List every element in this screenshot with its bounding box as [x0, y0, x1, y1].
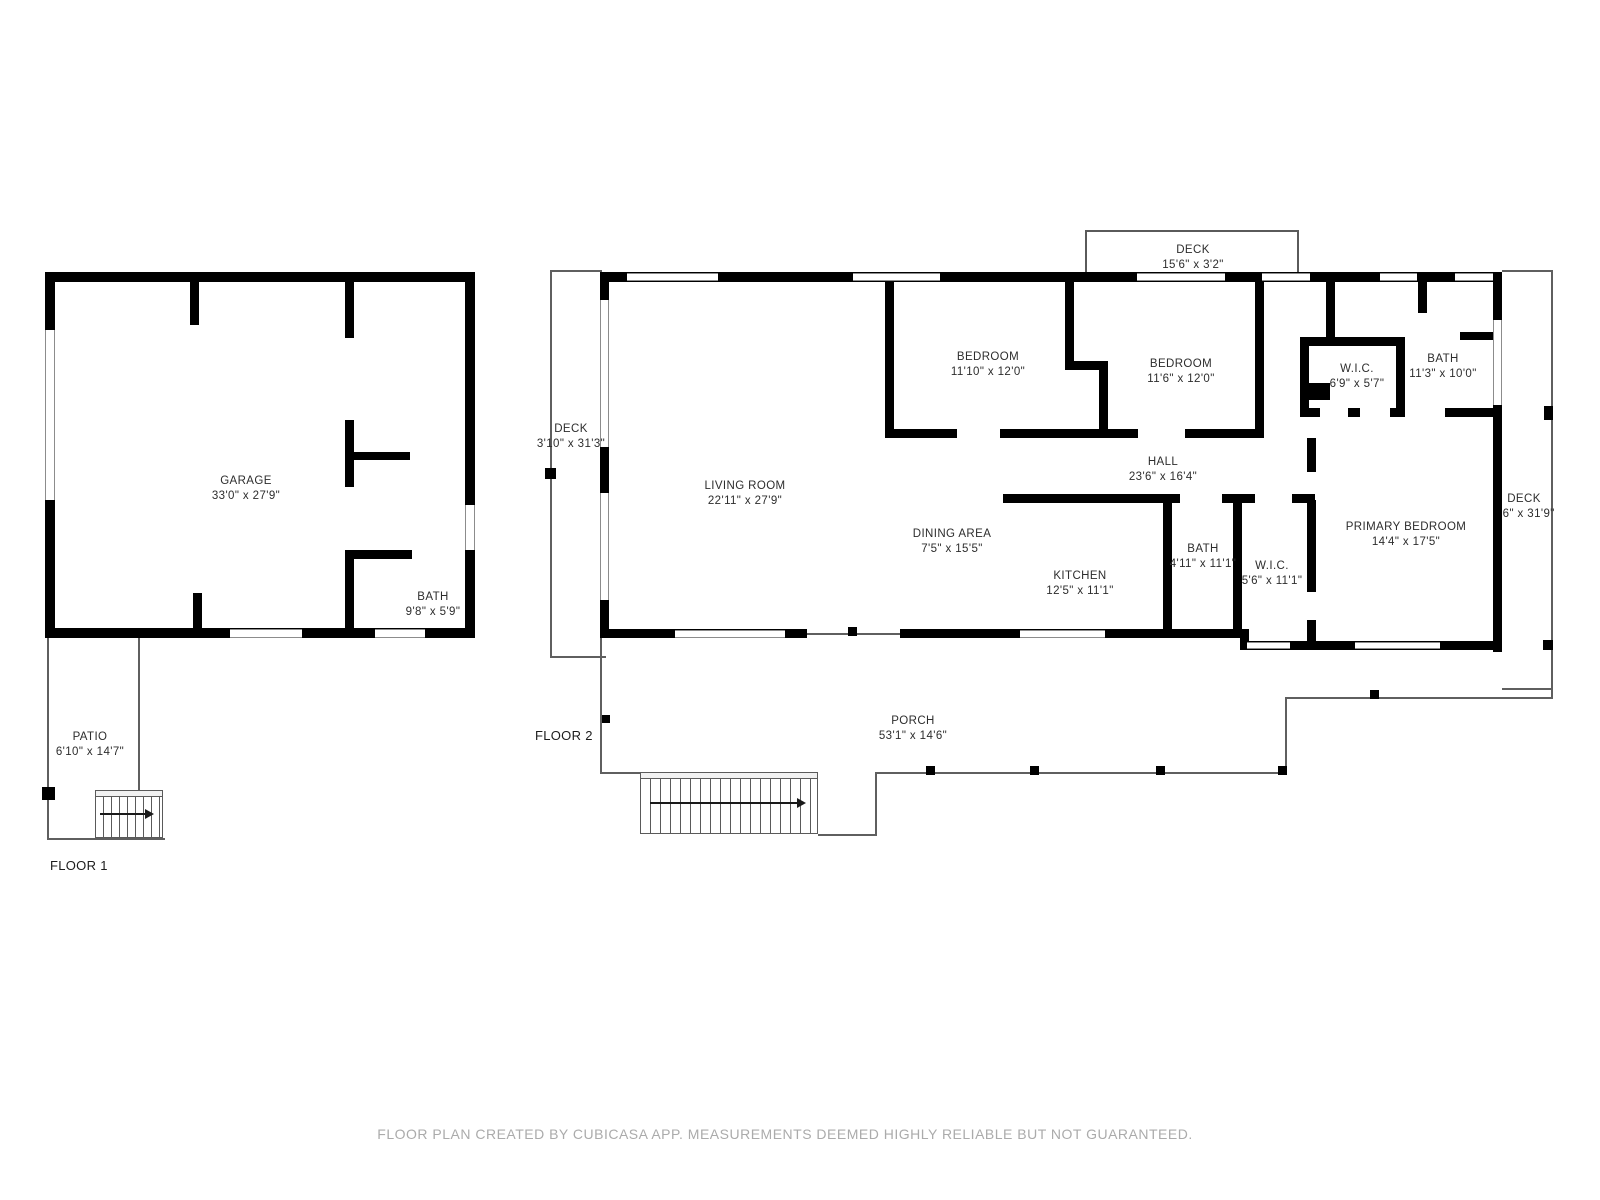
- wall-segment: [1396, 337, 1405, 417]
- room-name: DINING AREA: [913, 527, 992, 541]
- outline-line: [600, 772, 642, 774]
- wall-segment: [465, 272, 475, 638]
- wall-segment: [1326, 282, 1335, 337]
- wall-segment: [1445, 408, 1493, 417]
- window-marker: [45, 330, 55, 500]
- stairs-floor2: [640, 772, 818, 834]
- window-marker: [1262, 273, 1310, 281]
- room-name: DECK: [1493, 492, 1554, 506]
- room-name: BATH: [406, 590, 461, 604]
- room-dims: 53'1" x 14'6": [879, 729, 947, 743]
- window-marker: [1493, 320, 1502, 405]
- room-label-dining-area: DINING AREA 7'5" x 15'5": [913, 527, 992, 557]
- wall-segment: [1307, 620, 1316, 650]
- wall-segment: [345, 420, 354, 487]
- room-label-patio: PATIO 6'10" x 14'7": [56, 730, 124, 760]
- room-label-hall: HALL 23'6" x 16'4": [1129, 455, 1197, 485]
- post-marker: [602, 715, 610, 723]
- wall-segment: [1304, 383, 1330, 400]
- room-dims: 12'5" x 11'1": [1046, 584, 1113, 598]
- room-label-wic-upper: W.I.C. 6'9" x 5'7": [1330, 362, 1385, 392]
- room-name: DECK: [1162, 243, 1223, 257]
- room-label-living-room: LIVING ROOM 22'11" x 27'9": [704, 479, 785, 509]
- outline-line: [1285, 697, 1553, 699]
- post-marker: [1543, 640, 1553, 650]
- post-marker: [1278, 766, 1287, 775]
- room-dims: 4'11" x 11'1": [1170, 557, 1237, 571]
- room-name: LIVING ROOM: [704, 479, 785, 493]
- wall-segment: [1222, 494, 1255, 503]
- room-dims: 23'6" x 16'4": [1129, 470, 1197, 484]
- wall-segment: [193, 593, 202, 638]
- room-name: W.I.C.: [1330, 362, 1385, 376]
- stair-arrow-head: [797, 798, 806, 808]
- window-marker: [1020, 630, 1105, 638]
- room-dims: 3'10" x 31'3": [537, 437, 605, 451]
- outline-line: [875, 772, 877, 836]
- post-marker: [1544, 406, 1553, 420]
- window-marker: [1247, 642, 1290, 649]
- wall-segment: [345, 550, 354, 638]
- wall-segment: [1348, 408, 1360, 417]
- post-marker: [42, 787, 55, 800]
- window-marker: [375, 629, 425, 638]
- post-marker: [1156, 766, 1165, 775]
- wall-segment: [1300, 408, 1320, 417]
- room-name: PORCH: [879, 714, 947, 728]
- outline-line: [47, 638, 49, 840]
- room-dims: 15'6" x 3'2": [1162, 258, 1223, 272]
- floor2-title: FLOOR 2: [535, 728, 593, 743]
- wall-segment: [1307, 500, 1316, 592]
- room-dims: 7'5" x 15'5": [913, 542, 992, 556]
- room-dims: 14'4" x 17'5": [1346, 535, 1467, 549]
- outline-line: [600, 638, 602, 774]
- floor-plan: GARAGE 33'0" x 27'9" BATH 9'8" x 5'9" PA…: [0, 0, 1600, 1200]
- room-label-bath-floor1: BATH 9'8" x 5'9": [406, 590, 461, 620]
- wall-segment: [600, 272, 1502, 282]
- room-label-deck-right: DECK 3'6" x 31'9": [1493, 492, 1554, 522]
- room-name: PRIMARY BEDROOM: [1346, 520, 1467, 534]
- post-marker: [848, 627, 857, 636]
- room-name: BATH: [1409, 352, 1476, 366]
- window-marker: [1137, 273, 1225, 281]
- room-label-wic-mid: W.I.C. 5'6" x 11'1": [1242, 559, 1303, 589]
- window-marker: [853, 273, 940, 281]
- window-marker: [230, 629, 302, 638]
- wall-segment: [885, 282, 894, 436]
- room-label-porch: PORCH 53'1" x 14'6": [879, 714, 947, 744]
- wall-segment: [1108, 429, 1138, 438]
- window-marker: [600, 493, 609, 600]
- room-dims: 22'11" x 27'9": [704, 494, 785, 508]
- wall-segment: [1065, 282, 1074, 365]
- room-label-kitchen: KITCHEN 12'5" x 11'1": [1046, 569, 1113, 599]
- wall-segment: [345, 282, 354, 338]
- window-marker: [675, 630, 785, 638]
- room-label-deck-top: DECK 15'6" x 3'2": [1162, 243, 1223, 273]
- room-name: DECK: [537, 422, 605, 436]
- outline-line: [550, 270, 602, 272]
- post-marker: [926, 766, 935, 775]
- window-marker: [1380, 273, 1417, 281]
- stair-direction-arrow: [100, 813, 146, 815]
- outline-line: [1551, 270, 1553, 699]
- wall-segment: [354, 550, 412, 559]
- outline-line: [47, 838, 165, 840]
- room-name: KITCHEN: [1046, 569, 1113, 583]
- room-dims: 11'6" x 12'0": [1147, 372, 1214, 386]
- window-marker: [627, 273, 718, 281]
- window-marker: [465, 505, 475, 550]
- post-marker: [1030, 766, 1039, 775]
- floor1-title: FLOOR 1: [50, 858, 108, 873]
- room-dims: 5'6" x 11'1": [1242, 574, 1303, 588]
- wall-segment: [45, 272, 475, 282]
- room-dims: 6'10" x 14'7": [56, 745, 124, 759]
- stair-arrow-head: [145, 809, 154, 819]
- wall-segment: [1003, 494, 1180, 503]
- room-name: PATIO: [56, 730, 124, 744]
- room-label-bath-upper: BATH 11'3" x 10'0": [1409, 352, 1476, 382]
- room-dims: 11'10" x 12'0": [951, 365, 1025, 379]
- room-name: BATH: [1170, 542, 1237, 556]
- wall-segment: [1000, 429, 1108, 438]
- wall-segment: [1099, 361, 1108, 438]
- wall-segment: [1418, 282, 1427, 313]
- wall-segment: [885, 429, 957, 438]
- room-name: W.I.C.: [1242, 559, 1303, 573]
- disclaimer-text: FLOOR PLAN CREATED BY CUBICASA APP. MEAS…: [0, 1126, 1570, 1142]
- outline-line: [1285, 697, 1287, 774]
- room-label-bedroom-left: BEDROOM 11'10" x 12'0": [951, 350, 1025, 380]
- outline-line: [550, 656, 606, 658]
- room-label-bath-mid: BATH 4'11" x 11'1": [1170, 542, 1237, 572]
- wall-segment: [354, 452, 410, 460]
- room-name: GARAGE: [212, 474, 280, 488]
- wall-segment: [1390, 408, 1405, 417]
- room-dims: 33'0" x 27'9": [212, 489, 280, 503]
- room-label-deck-left: DECK 3'10" x 31'3": [537, 422, 605, 452]
- wall-segment: [1300, 337, 1405, 346]
- post-marker: [545, 468, 556, 479]
- outline-line: [138, 638, 140, 790]
- wall-segment: [190, 282, 199, 325]
- stairs-floor1: [95, 790, 163, 838]
- wall-segment: [1185, 429, 1264, 438]
- post-marker: [1370, 690, 1379, 699]
- room-name: BEDROOM: [1147, 357, 1214, 371]
- outline-line: [1502, 270, 1551, 272]
- room-dims: 9'8" x 5'9": [406, 605, 461, 619]
- room-label-bedroom-right: BEDROOM 11'6" x 12'0": [1147, 357, 1214, 387]
- wall-segment: [1255, 282, 1264, 438]
- outline-line: [550, 270, 552, 658]
- stair-direction-arrow: [650, 802, 798, 804]
- window-marker: [1455, 273, 1493, 281]
- wall-segment: [1307, 438, 1316, 472]
- wall-segment: [1300, 337, 1309, 417]
- window-marker: [1355, 642, 1440, 649]
- wall-segment: [1460, 332, 1497, 340]
- room-dims: 11'3" x 10'0": [1409, 367, 1476, 381]
- stair-treads: [640, 778, 818, 834]
- room-name: HALL: [1129, 455, 1197, 469]
- outline-line: [818, 834, 877, 836]
- outline-line: [1502, 688, 1551, 690]
- room-name: BEDROOM: [951, 350, 1025, 364]
- room-dims: 6'9" x 5'7": [1330, 377, 1385, 391]
- outline-line: [875, 772, 1287, 774]
- room-label-garage: GARAGE 33'0" x 27'9": [212, 474, 280, 504]
- room-dims: 3'6" x 31'9": [1493, 507, 1554, 521]
- room-label-primary-bedroom: PRIMARY BEDROOM 14'4" x 17'5": [1346, 520, 1467, 550]
